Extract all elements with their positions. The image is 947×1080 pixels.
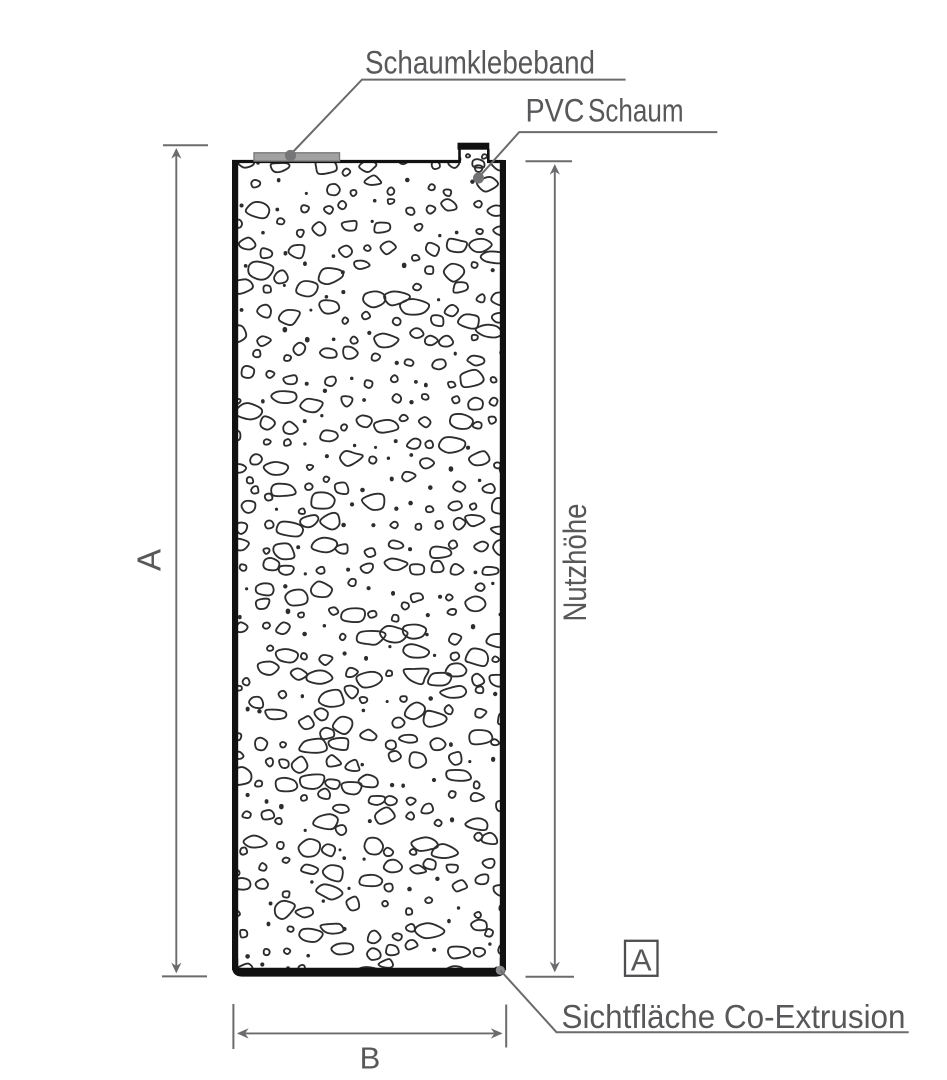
svg-text:PVCSchaum: PVCSchaum: [526, 93, 684, 129]
svg-text:B: B: [360, 1041, 381, 1076]
svg-text:Schaumklebeband: Schaumklebeband: [365, 45, 595, 81]
svg-text:A: A: [131, 549, 168, 571]
svg-text:Nutzhöhe: Nutzhöhe: [557, 504, 593, 622]
svg-text:A: A: [631, 943, 652, 978]
svg-text:Sichtfläche Co-Extrusion: Sichtfläche Co-Extrusion: [562, 998, 906, 1035]
